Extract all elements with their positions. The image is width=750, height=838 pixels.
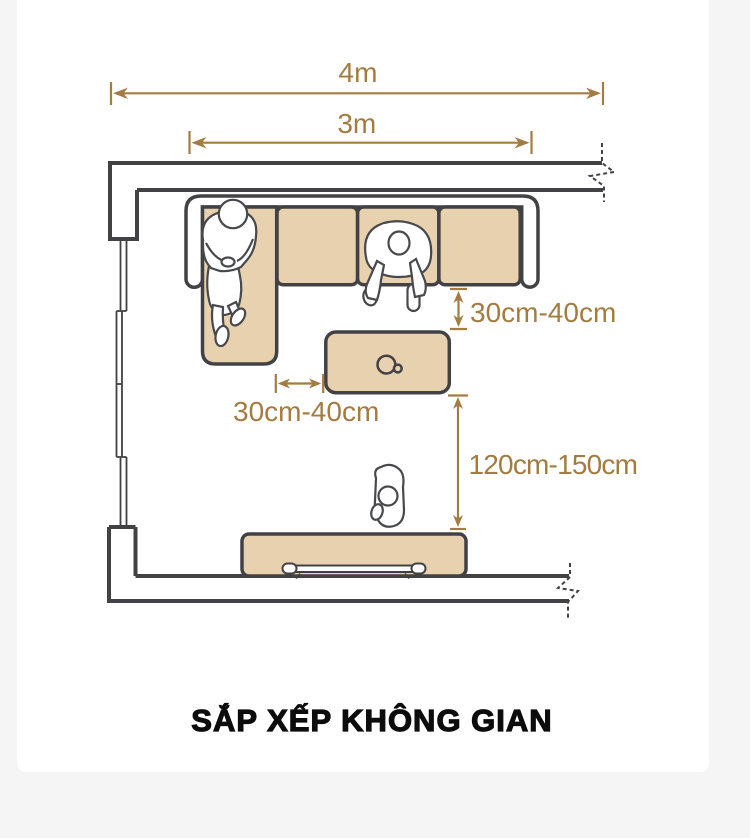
- svg-text:4m: 4m: [339, 57, 378, 88]
- svg-text:30cm-40cm: 30cm-40cm: [470, 297, 616, 328]
- svg-text:120cm-150cm: 120cm-150cm: [469, 449, 638, 480]
- svg-text:30cm-40cm: 30cm-40cm: [233, 396, 379, 427]
- svg-text:3m: 3m: [337, 108, 376, 139]
